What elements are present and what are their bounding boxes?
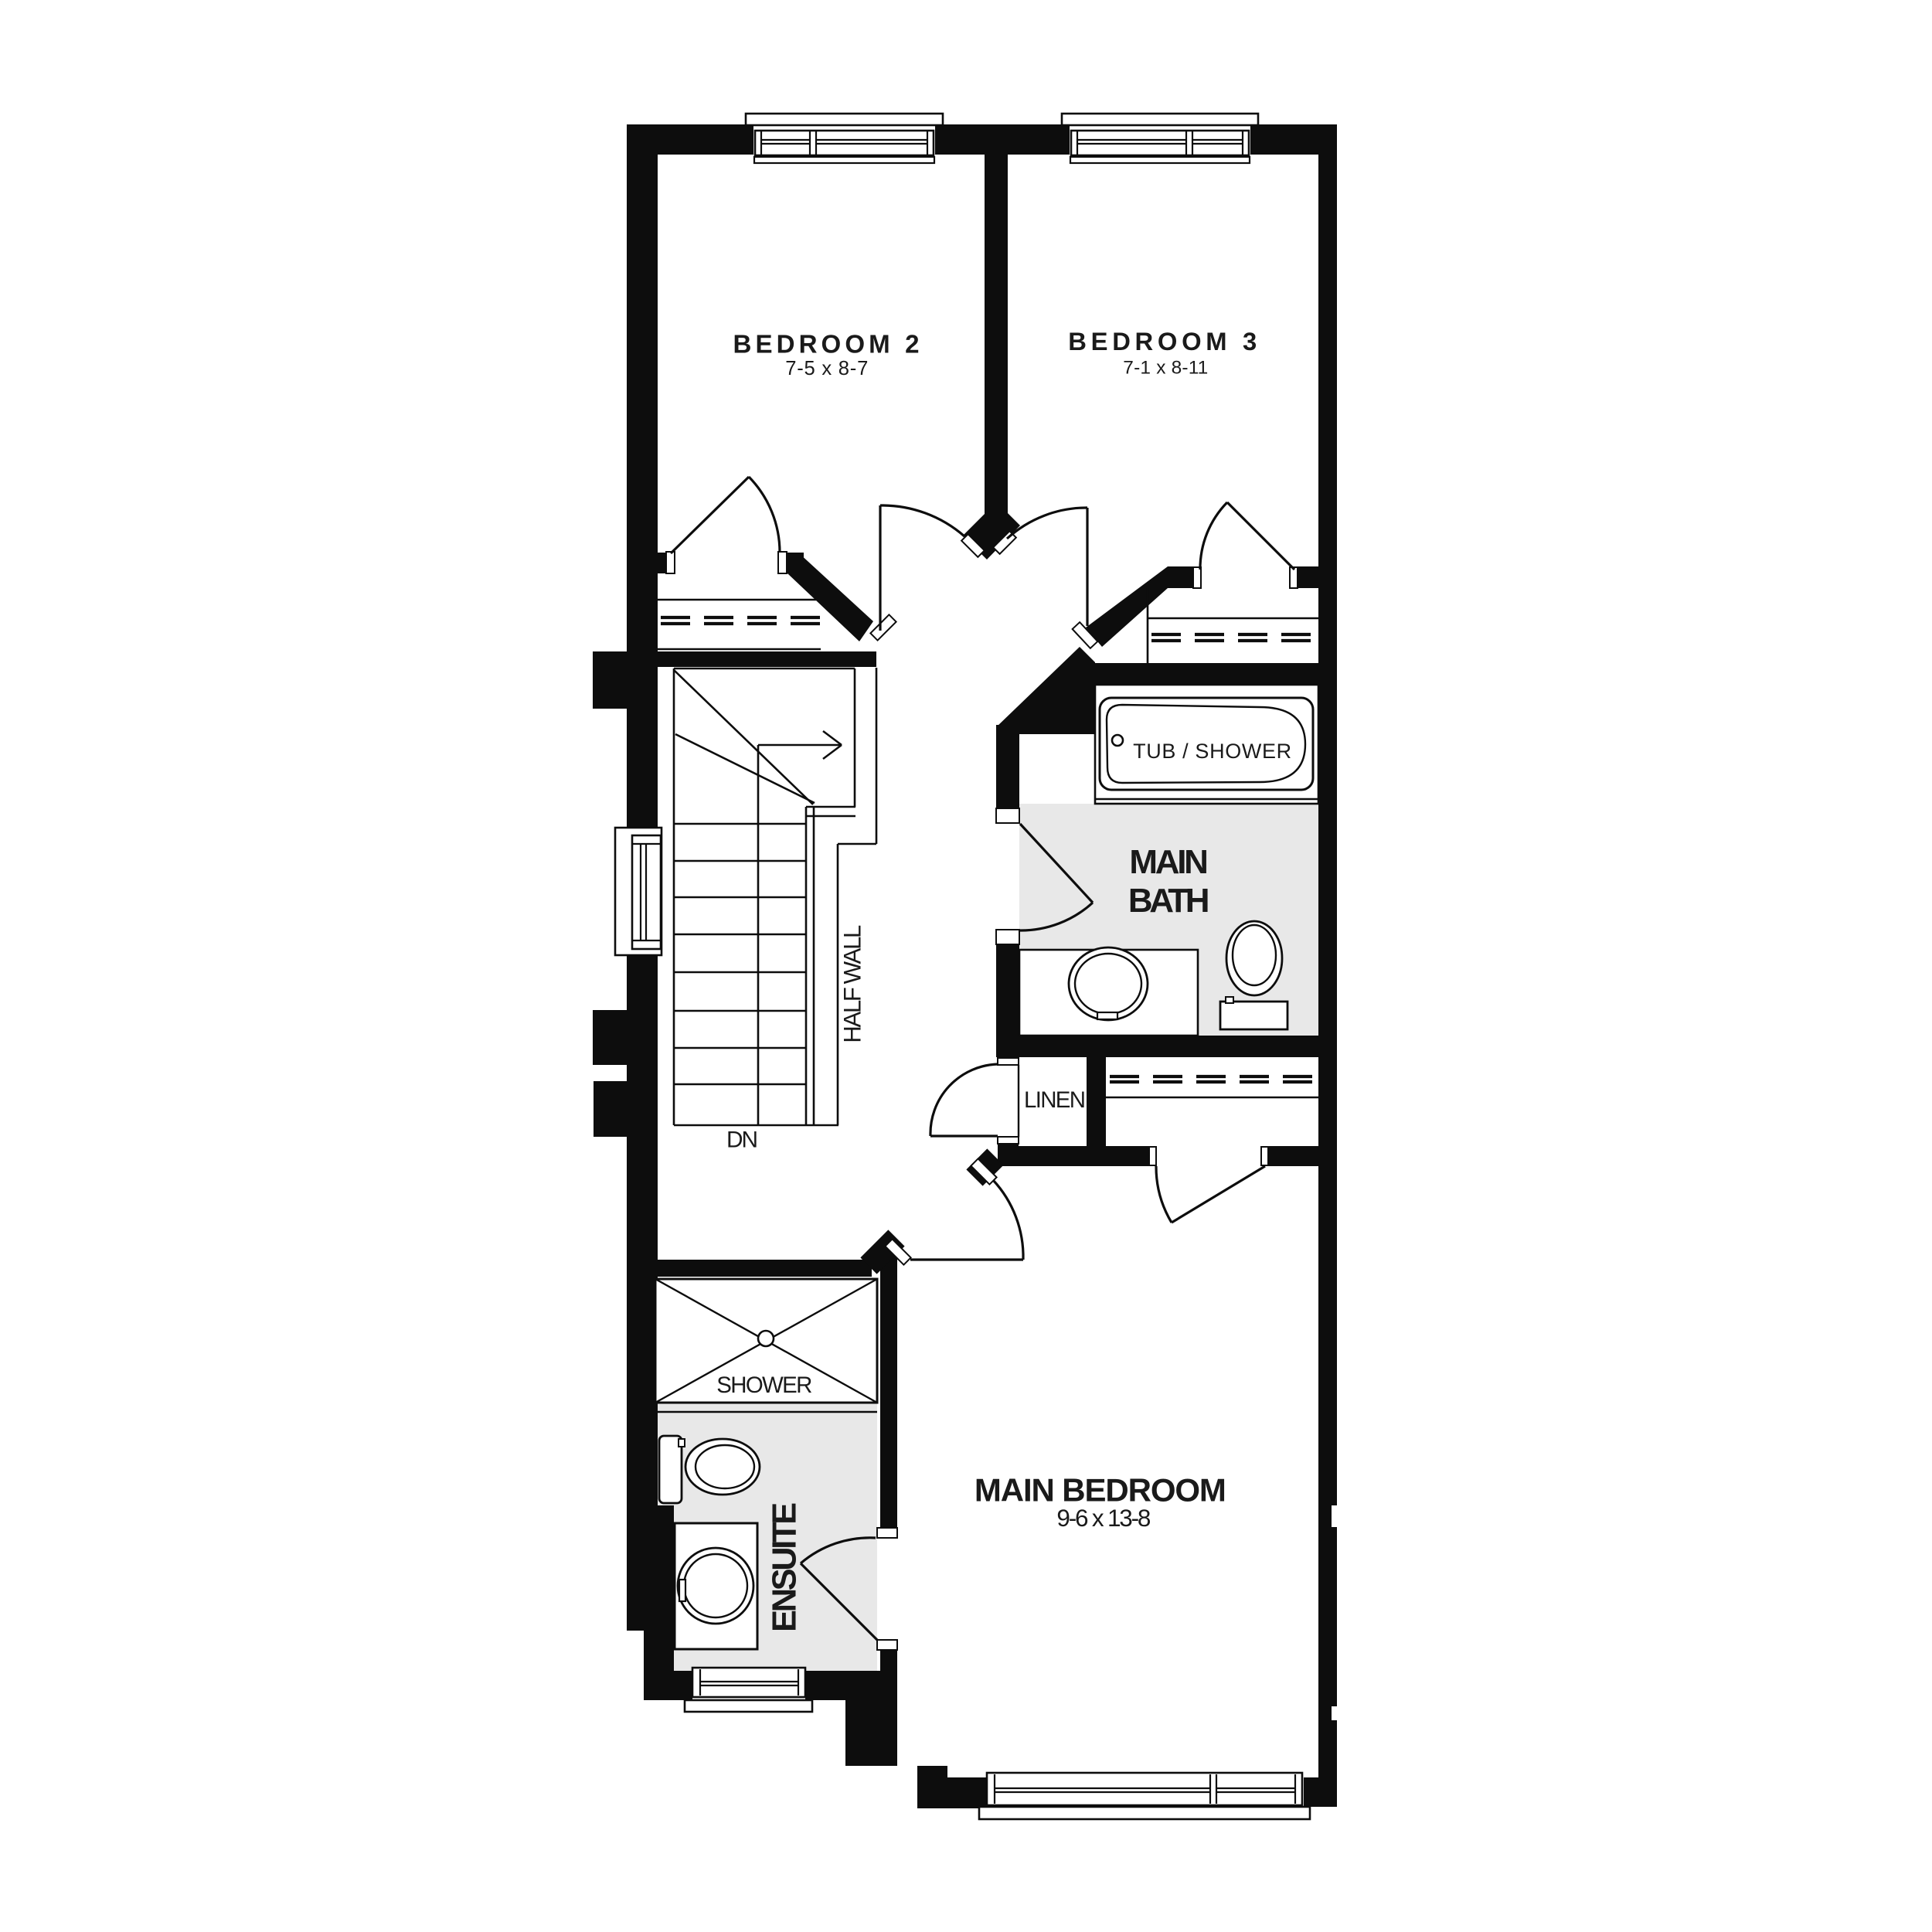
svg-text:MAIN BEDROOM: MAIN BEDROOM: [975, 1472, 1226, 1509]
svg-text:9-6 x 13-8: 9-6 x 13-8: [1056, 1504, 1151, 1532]
svg-text:7-5 x 8-7: 7-5 x 8-7: [785, 358, 868, 379]
svg-text:ENSUITE: ENSUITE: [767, 1502, 804, 1632]
svg-text:TUB / SHOWER: TUB / SHOWER: [1133, 740, 1291, 763]
svg-text:SHOWER: SHOWER: [716, 1372, 812, 1398]
svg-text:BATH: BATH: [1128, 882, 1210, 920]
svg-text:LINEN: LINEN: [1024, 1087, 1086, 1113]
svg-text:DN: DN: [726, 1128, 758, 1153]
svg-text:7-1 x 8-11: 7-1 x 8-11: [1123, 358, 1208, 379]
svg-text:HALF WALL: HALF WALL: [838, 925, 866, 1043]
svg-text:MAIN: MAIN: [1129, 843, 1209, 881]
